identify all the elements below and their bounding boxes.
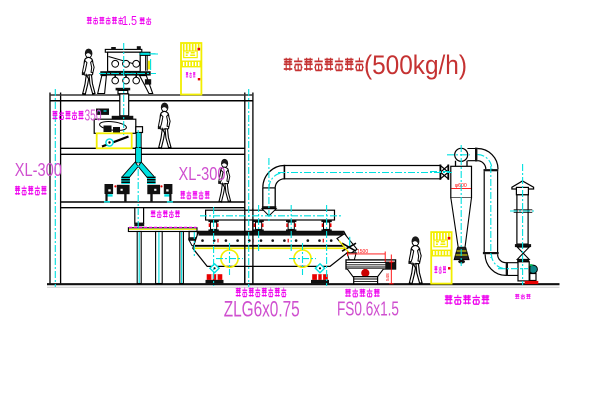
svg-text:FS0.6x1.5: FS0.6x1.5 — [337, 299, 399, 321]
svg-text:548: 548 — [385, 273, 390, 281]
svg-text:XL-300: XL-300 — [179, 164, 226, 184]
svg-text:1.5: 1.5 — [122, 13, 137, 28]
svg-text:1500: 1500 — [357, 249, 368, 255]
svg-text:XL-300: XL-300 — [15, 160, 62, 180]
svg-text:(500kg/h): (500kg/h) — [364, 50, 467, 80]
svg-text:ZLG6x0.75: ZLG6x0.75 — [224, 297, 300, 322]
svg-text:350: 350 — [85, 108, 102, 125]
